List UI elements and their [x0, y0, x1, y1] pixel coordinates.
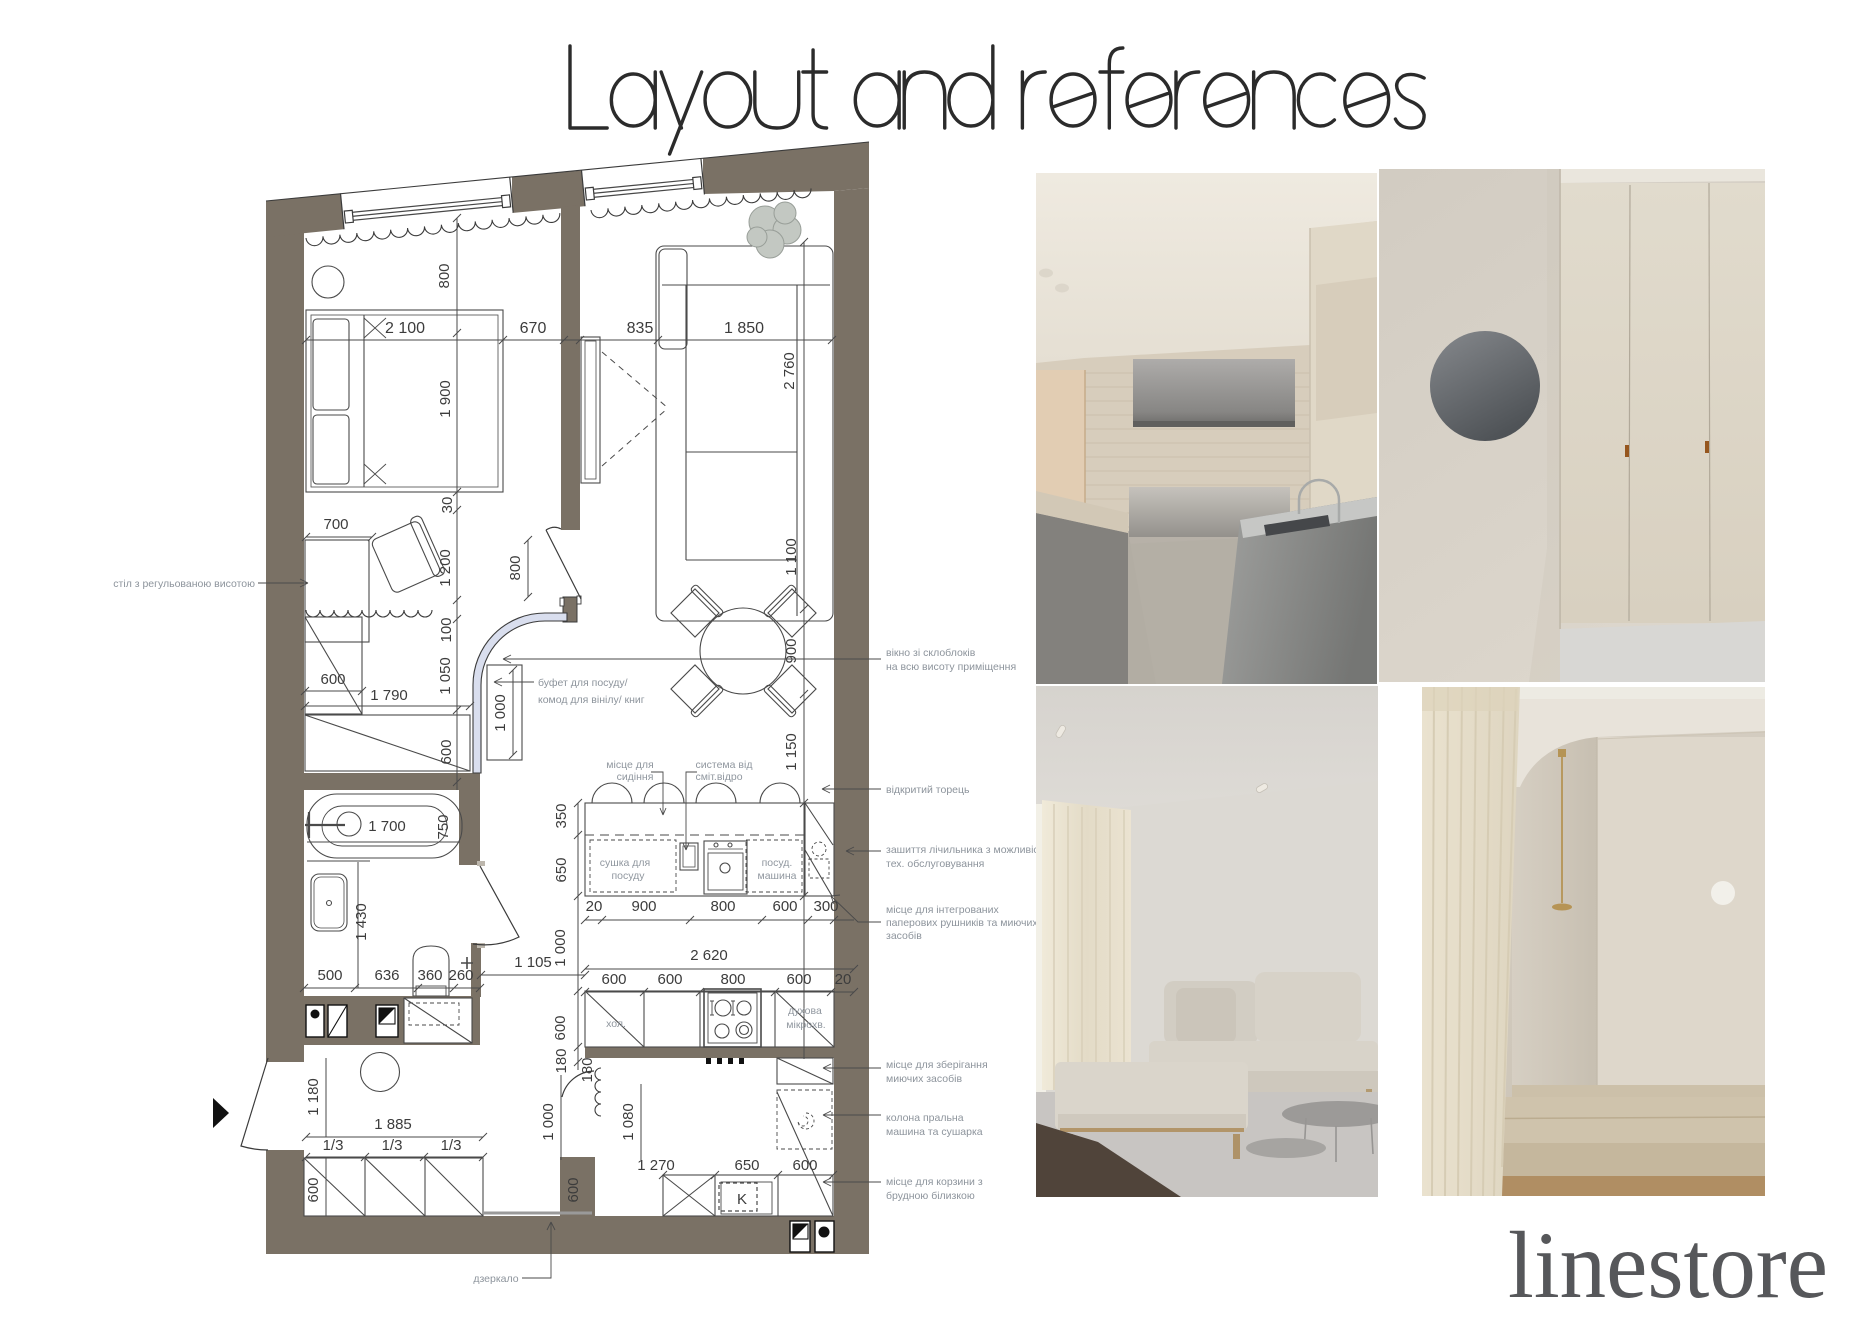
svg-text:відкритий торець: відкритий торець [886, 784, 970, 796]
svg-text:брудною білизкою: брудною білизкою [886, 1190, 975, 1202]
svg-text:дзеркало: дзеркало [473, 1273, 518, 1285]
svg-text:900: 900 [783, 638, 800, 663]
svg-text:посуд.: посуд. [762, 857, 793, 869]
svg-text:миючих засобів: миючих засобів [886, 1073, 962, 1085]
svg-text:1 850: 1 850 [724, 320, 764, 337]
svg-text:700: 700 [323, 516, 348, 533]
svg-text:360: 360 [417, 967, 442, 984]
svg-text:буфет для посуду/: буфет для посуду/ [538, 677, 628, 689]
svg-text:1/3: 1/3 [382, 1137, 403, 1154]
svg-text:тех. обслуговування: тех. обслуговування [886, 858, 984, 870]
svg-text:1 700: 1 700 [368, 818, 406, 835]
svg-text:засобів: засобів [886, 930, 922, 942]
svg-text:180: 180 [579, 1057, 596, 1082]
svg-text:636: 636 [374, 967, 399, 984]
svg-text:1 885: 1 885 [374, 1116, 412, 1133]
svg-text:800: 800 [507, 555, 524, 580]
svg-text:зашиття лічильника з можливіст: зашиття лічильника з можливістю [886, 844, 1051, 856]
svg-text:комод для вінілу/ книг: комод для вінілу/ книг [538, 694, 645, 706]
svg-text:духова: духова [788, 1005, 822, 1017]
svg-text:1 180: 1 180 [305, 1078, 322, 1116]
svg-text:600: 600 [786, 971, 811, 988]
svg-text:1 000: 1 000 [552, 929, 569, 967]
svg-text:місце для зберігання: місце для зберігання [886, 1059, 988, 1071]
svg-text:сидіння: сидіння [617, 771, 654, 783]
svg-text:1/3: 1/3 [323, 1137, 344, 1154]
svg-text:500: 500 [317, 967, 342, 984]
svg-text:паперових рушників та миючих: паперових рушників та миючих [886, 917, 1038, 929]
svg-text:1 100: 1 100 [783, 538, 800, 576]
svg-text:600: 600 [565, 1177, 582, 1202]
svg-text:1 790: 1 790 [370, 687, 408, 704]
svg-text:600: 600 [772, 898, 797, 915]
svg-text:колона пральна: колона пральна [886, 1112, 964, 1124]
svg-text:1 105: 1 105 [514, 954, 552, 971]
svg-text:20: 20 [835, 971, 852, 988]
svg-text:1 200: 1 200 [437, 549, 454, 587]
svg-text:система від: система від [696, 759, 753, 771]
svg-text:800: 800 [710, 898, 735, 915]
svg-text:900: 900 [631, 898, 656, 915]
svg-text:машина та сушарка: машина та сушарка [886, 1126, 983, 1138]
svg-text:600: 600 [601, 971, 626, 988]
svg-text:600: 600 [657, 971, 682, 988]
svg-text:2 100: 2 100 [385, 320, 425, 337]
svg-text:350: 350 [553, 803, 570, 828]
svg-text:1 050: 1 050 [437, 657, 454, 695]
svg-text:1/3: 1/3 [441, 1137, 462, 1154]
svg-text:260: 260 [448, 967, 473, 984]
svg-text:1 900: 1 900 [437, 380, 454, 418]
svg-text:2 760: 2 760 [781, 352, 798, 390]
svg-text:посуду: посуду [611, 870, 645, 882]
svg-text:750: 750 [435, 814, 452, 839]
svg-text:600: 600 [552, 1015, 569, 1040]
svg-text:180: 180 [553, 1048, 570, 1073]
svg-text:хол.: хол. [606, 1018, 626, 1030]
svg-text:1 000: 1 000 [540, 1103, 557, 1141]
svg-text:20: 20 [586, 898, 603, 915]
svg-text:835: 835 [627, 320, 654, 337]
svg-text:місце для корзини з: місце для корзини з [886, 1176, 983, 1188]
svg-text:600: 600 [305, 1177, 322, 1202]
svg-text:650: 650 [734, 1157, 759, 1174]
svg-text:1 270: 1 270 [637, 1157, 675, 1174]
svg-text:600: 600 [438, 739, 455, 764]
svg-text:сушка для: сушка для [600, 857, 650, 869]
svg-text:600: 600 [792, 1157, 817, 1174]
svg-text:linestore: linestore [1508, 1212, 1828, 1318]
svg-text:вікно зі склоблоків: вікно зі склоблоків [886, 647, 976, 659]
svg-text:мікрохв.: мікрохв. [786, 1019, 825, 1031]
svg-text:місце для інтегрованих: місце для інтегрованих [886, 904, 999, 916]
svg-text:100: 100 [438, 617, 455, 642]
svg-text:650: 650 [553, 857, 570, 882]
svg-text:1 080: 1 080 [620, 1103, 637, 1141]
svg-text:місце для: місце для [606, 759, 653, 771]
svg-text:машина: машина [758, 870, 797, 882]
svg-text:30: 30 [439, 497, 456, 514]
svg-text:сміт.відро: сміт.відро [695, 771, 742, 783]
svg-text:300: 300 [813, 898, 838, 915]
svg-text:800: 800 [436, 263, 453, 288]
svg-text:600: 600 [320, 671, 345, 688]
svg-text:стіл з регульованою висотою: стіл з регульованою висотою [113, 578, 255, 590]
svg-text:2 620: 2 620 [690, 947, 728, 964]
svg-text:1 150: 1 150 [783, 733, 800, 771]
svg-text:800: 800 [720, 971, 745, 988]
svg-text:1 430: 1 430 [353, 903, 370, 941]
svg-text:1 000: 1 000 [492, 694, 509, 732]
svg-text:670: 670 [520, 320, 547, 337]
svg-text:на всю висоту приміщення: на всю висоту приміщення [886, 661, 1016, 673]
